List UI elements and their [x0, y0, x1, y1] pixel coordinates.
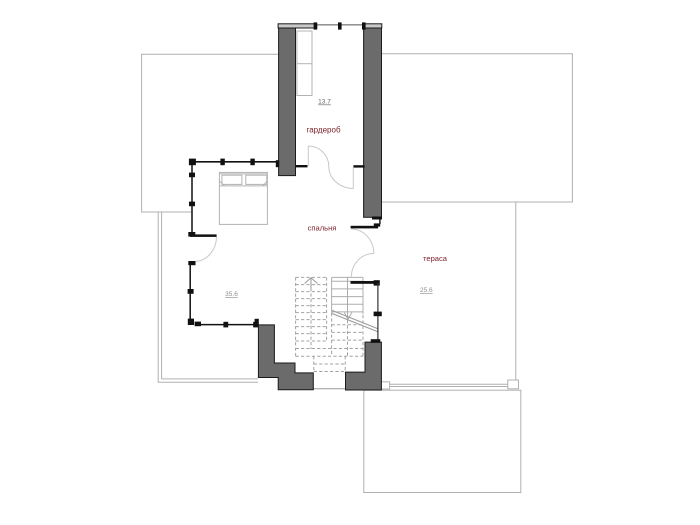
svg-text:спальня: спальня [308, 223, 337, 232]
svg-text:гардероб: гардероб [306, 125, 340, 134]
svg-text:тераса: тераса [423, 254, 448, 263]
svg-text:35.6: 35.6 [225, 291, 238, 298]
svg-text:13.7: 13.7 [318, 99, 331, 106]
svg-text:25.6: 25.6 [420, 287, 433, 294]
